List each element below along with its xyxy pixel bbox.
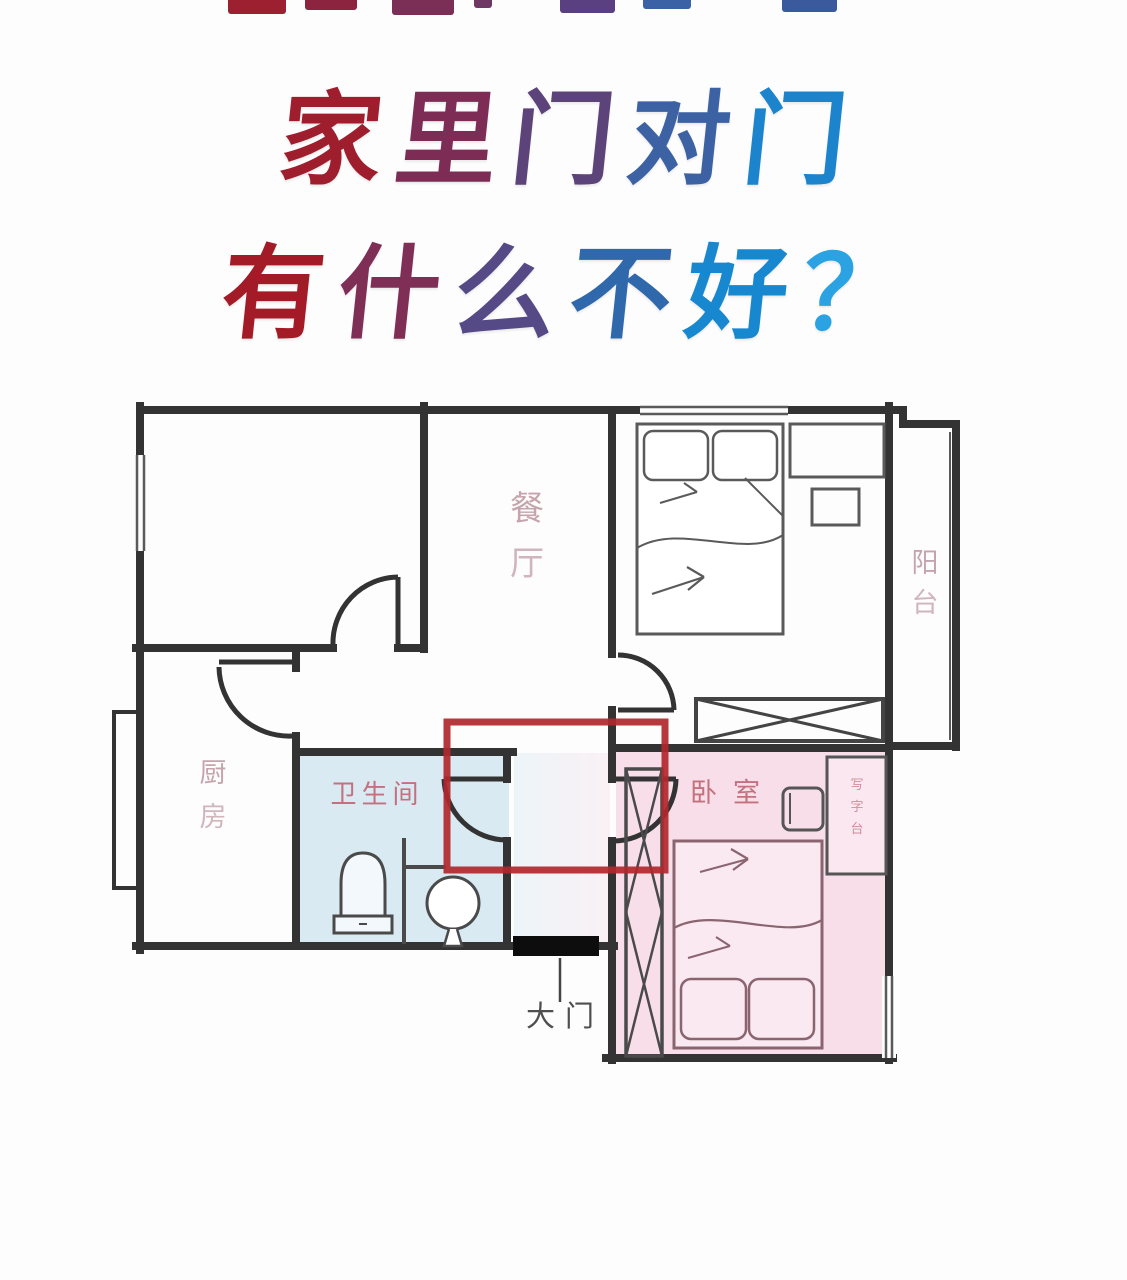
floorplan: 餐 厅 厨 房 阳 台 卫生间 卧室 写 字 台 大门 (105, 375, 995, 1075)
toilet (341, 853, 385, 916)
cropped-title-fragment (560, 0, 615, 13)
dresser (790, 424, 884, 477)
bedroom2-furniture (637, 424, 884, 741)
title-char: 家 (273, 58, 390, 205)
title-line-1: 家里门对门 (0, 58, 1127, 205)
kitchen-label: 房 (200, 802, 227, 832)
bedroom2-door (618, 655, 674, 710)
title-char: 门 (737, 58, 854, 205)
desk-label: 台 (850, 821, 863, 836)
desk-label: 字 (850, 799, 863, 814)
title-char: 里 (389, 58, 506, 205)
washbasin (427, 877, 479, 929)
kitchen-door (219, 662, 292, 736)
cropped-title-fragment (643, 0, 691, 9)
dining-label: 厅 (510, 545, 544, 583)
desk-label: 写 (850, 777, 863, 792)
title-char: 有 (215, 212, 332, 359)
title-char: 好 (679, 212, 796, 359)
top-left-room-door (333, 577, 398, 646)
balcony-label: 阳 (912, 548, 939, 578)
closet (696, 699, 883, 741)
title-char: ？ (795, 212, 912, 359)
title-line-2: 有什么不好？ (0, 212, 1127, 359)
cropped-title-fragment (782, 0, 837, 12)
title-char: 不 (563, 212, 680, 359)
cropped-title-fragment (474, 0, 492, 8)
dining-label: 餐 (510, 490, 544, 528)
cropped-title-fragment (305, 0, 357, 10)
main-door-label: 大门 (526, 1000, 604, 1033)
desk (827, 757, 886, 874)
bed (637, 424, 783, 634)
title-char: 门 (505, 58, 622, 205)
poster-page: 家里门对门 有什么不好？ (0, 0, 1127, 1280)
kitchen-label: 厨 (200, 758, 227, 788)
entry-door-threshold (513, 936, 599, 956)
cropped-title-fragment (392, 0, 454, 15)
title-char: 对 (621, 58, 738, 205)
title-char: 么 (447, 212, 564, 359)
bedroom-label: 卧室 (690, 778, 776, 808)
nightstand (812, 489, 859, 525)
title-char: 什 (331, 212, 448, 359)
corridor-floor (514, 753, 610, 943)
balcony-label: 台 (912, 588, 939, 618)
cropped-title-fragment (228, 0, 286, 14)
bathroom-label: 卫生间 (330, 779, 423, 809)
